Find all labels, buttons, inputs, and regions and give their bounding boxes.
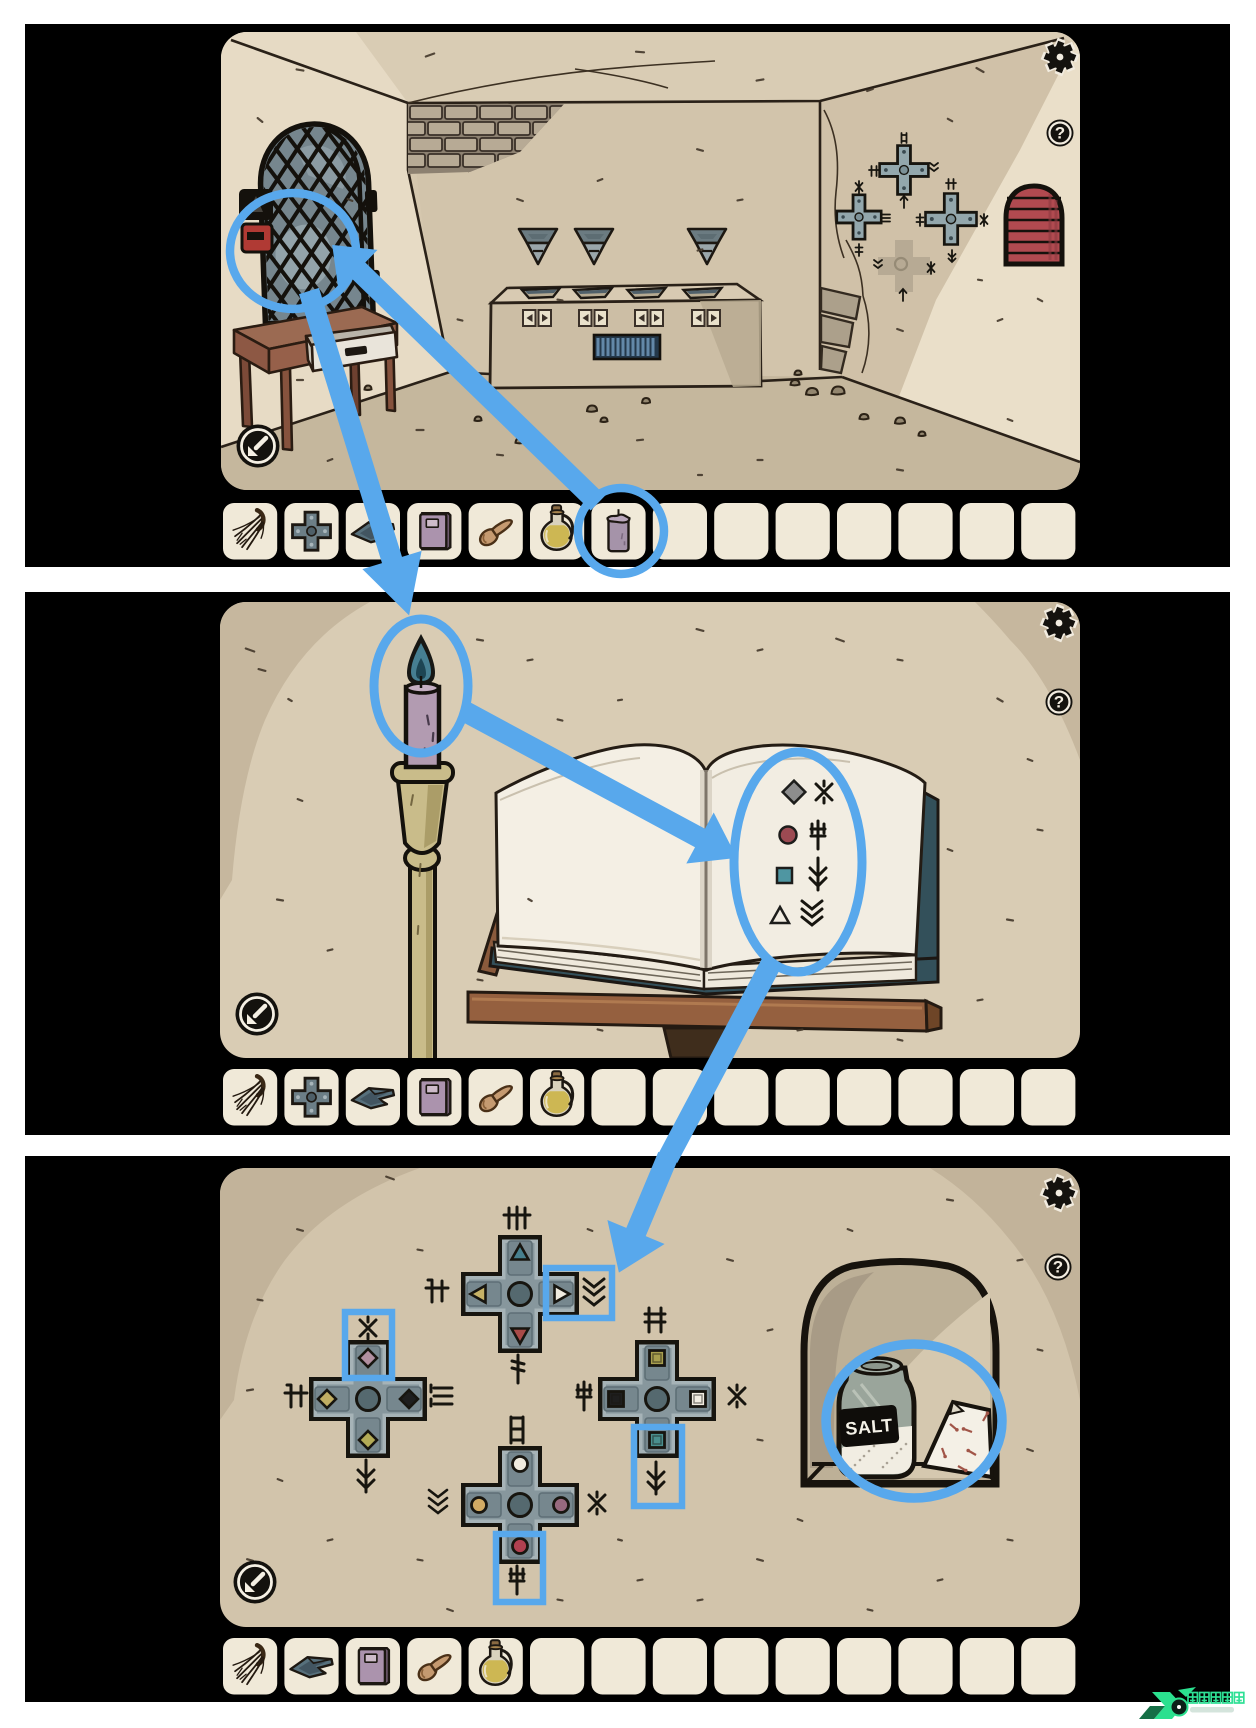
svg-text:?: ? [1053,1258,1063,1277]
svg-text:?: ? [1055,124,1065,143]
svg-text:?: ? [1054,693,1064,712]
svg-text:SALT: SALT [844,1415,893,1439]
